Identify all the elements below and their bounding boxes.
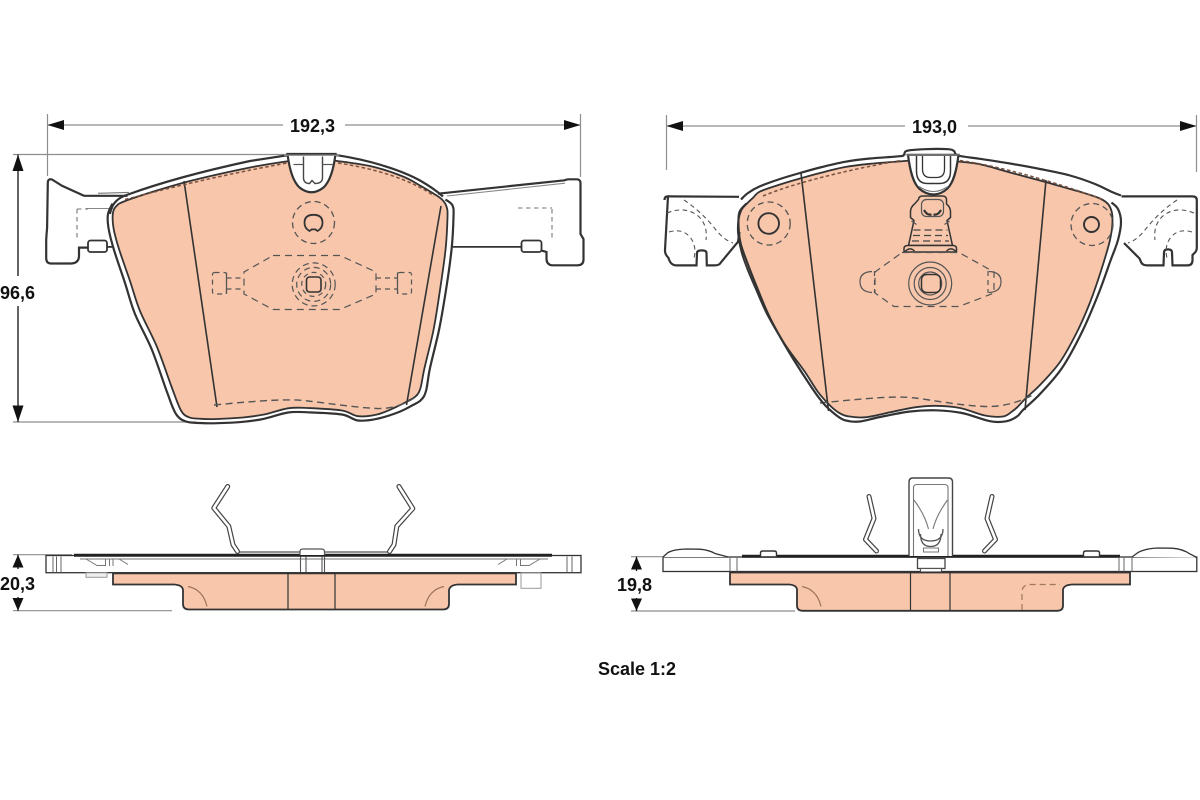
- svg-text:192,3: 192,3: [290, 116, 335, 136]
- svg-text:96,6: 96,6: [0, 283, 35, 303]
- svg-text:Scale 1:2: Scale 1:2: [598, 659, 676, 679]
- svg-text:20,3: 20,3: [0, 574, 35, 594]
- svg-text:193,0: 193,0: [912, 117, 957, 137]
- svg-text:19,8: 19,8: [617, 575, 652, 595]
